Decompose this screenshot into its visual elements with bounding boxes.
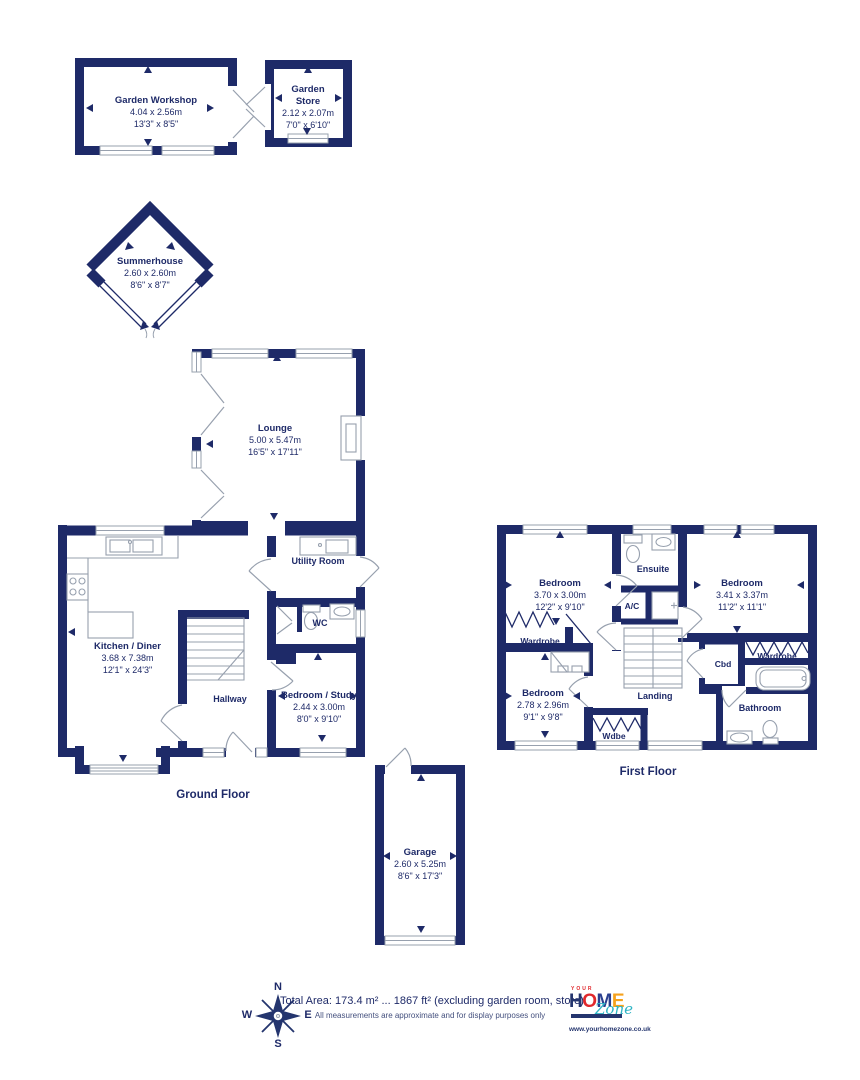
disclaimer-text: All measurements are approximate and for… (280, 1011, 580, 1020)
label-bathroom: Bathroom (722, 702, 798, 714)
label-landing: Landing (620, 690, 690, 702)
bath-icon (756, 667, 810, 690)
label-hallway: Hallway (190, 693, 270, 705)
sink-icon (106, 537, 162, 555)
label-garden-store: Garden Store 2.12 x 2.07m 7'0" x 6'10" (270, 84, 346, 131)
compass-north-label: N (269, 981, 287, 993)
door-swings (386, 748, 411, 767)
shower-icon (652, 592, 678, 619)
floorplan-drawing (0, 0, 860, 1080)
label-wdbe: Wdbe (590, 731, 638, 741)
label-ac: A/C (616, 601, 648, 611)
label-bedroom-2: Bedroom 3.41 x 3.37m 11'2" x 11'1" (692, 578, 792, 613)
label-garden-workshop: Garden Workshop 4.04 x 2.56m 13'3" x 8'5… (77, 95, 235, 130)
hob-icon (67, 574, 88, 600)
label-lounge: Lounge 5.00 x 5.47m 16'5" x 17'11" (196, 423, 354, 458)
furniture-icon (551, 652, 589, 672)
homezone-logo: YOUR HOME Zone www.yourhomezone.co.uk (564, 984, 656, 1038)
label-wardrobe-2: Wardrobe (741, 651, 813, 661)
utility-sink-icon (300, 537, 356, 555)
label-ensuite: Ensuite (620, 563, 686, 575)
label-bedroom-study: Bedroom / Study 2.44 x 3.00m 8'0" x 9'10… (275, 690, 363, 725)
compass-south-label: S (269, 1038, 287, 1050)
first-floor-title: First Floor (583, 766, 713, 778)
logo-zone-text: Zone (595, 1000, 633, 1018)
label-utility-room: Utility Room (276, 555, 360, 567)
label-bedroom-3: Bedroom 2.78 x 2.96m 9'1" x 9'8" (495, 688, 591, 723)
ground-floor-title: Ground Floor (148, 789, 278, 801)
floorplan-page: Garden Workshop 4.04 x 2.56m 13'3" x 8'5… (0, 0, 860, 1080)
ensuite-basin-icon (652, 534, 675, 550)
label-summerhouse: Summerhouse 2.60 x 2.60m 8'6" x 8'7" (90, 256, 210, 291)
logo-url-text: www.yourhomezone.co.uk (569, 1026, 651, 1033)
label-wc: WC (300, 617, 340, 629)
compass-west-label: W (238, 1009, 256, 1021)
bathroom-basin-icon (727, 731, 752, 744)
label-kitchen-diner: Kitchen / Diner 3.68 x 7.38m 12'1" x 24'… (60, 641, 195, 676)
label-garage: Garage 2.60 x 5.25m 8'6" x 17'3" (378, 847, 462, 882)
label-bedroom-1: Bedroom 3.70 x 3.00m 12'2" x 9'10" (510, 578, 610, 613)
bathroom-toilet-icon (763, 721, 778, 745)
label-wardrobe-1: Wardrobe (504, 636, 576, 646)
total-area-text: Total Area: 173.4 m² ... 1867 ft² (exclu… (280, 995, 580, 1007)
label-cbd: Cbd (706, 659, 740, 669)
